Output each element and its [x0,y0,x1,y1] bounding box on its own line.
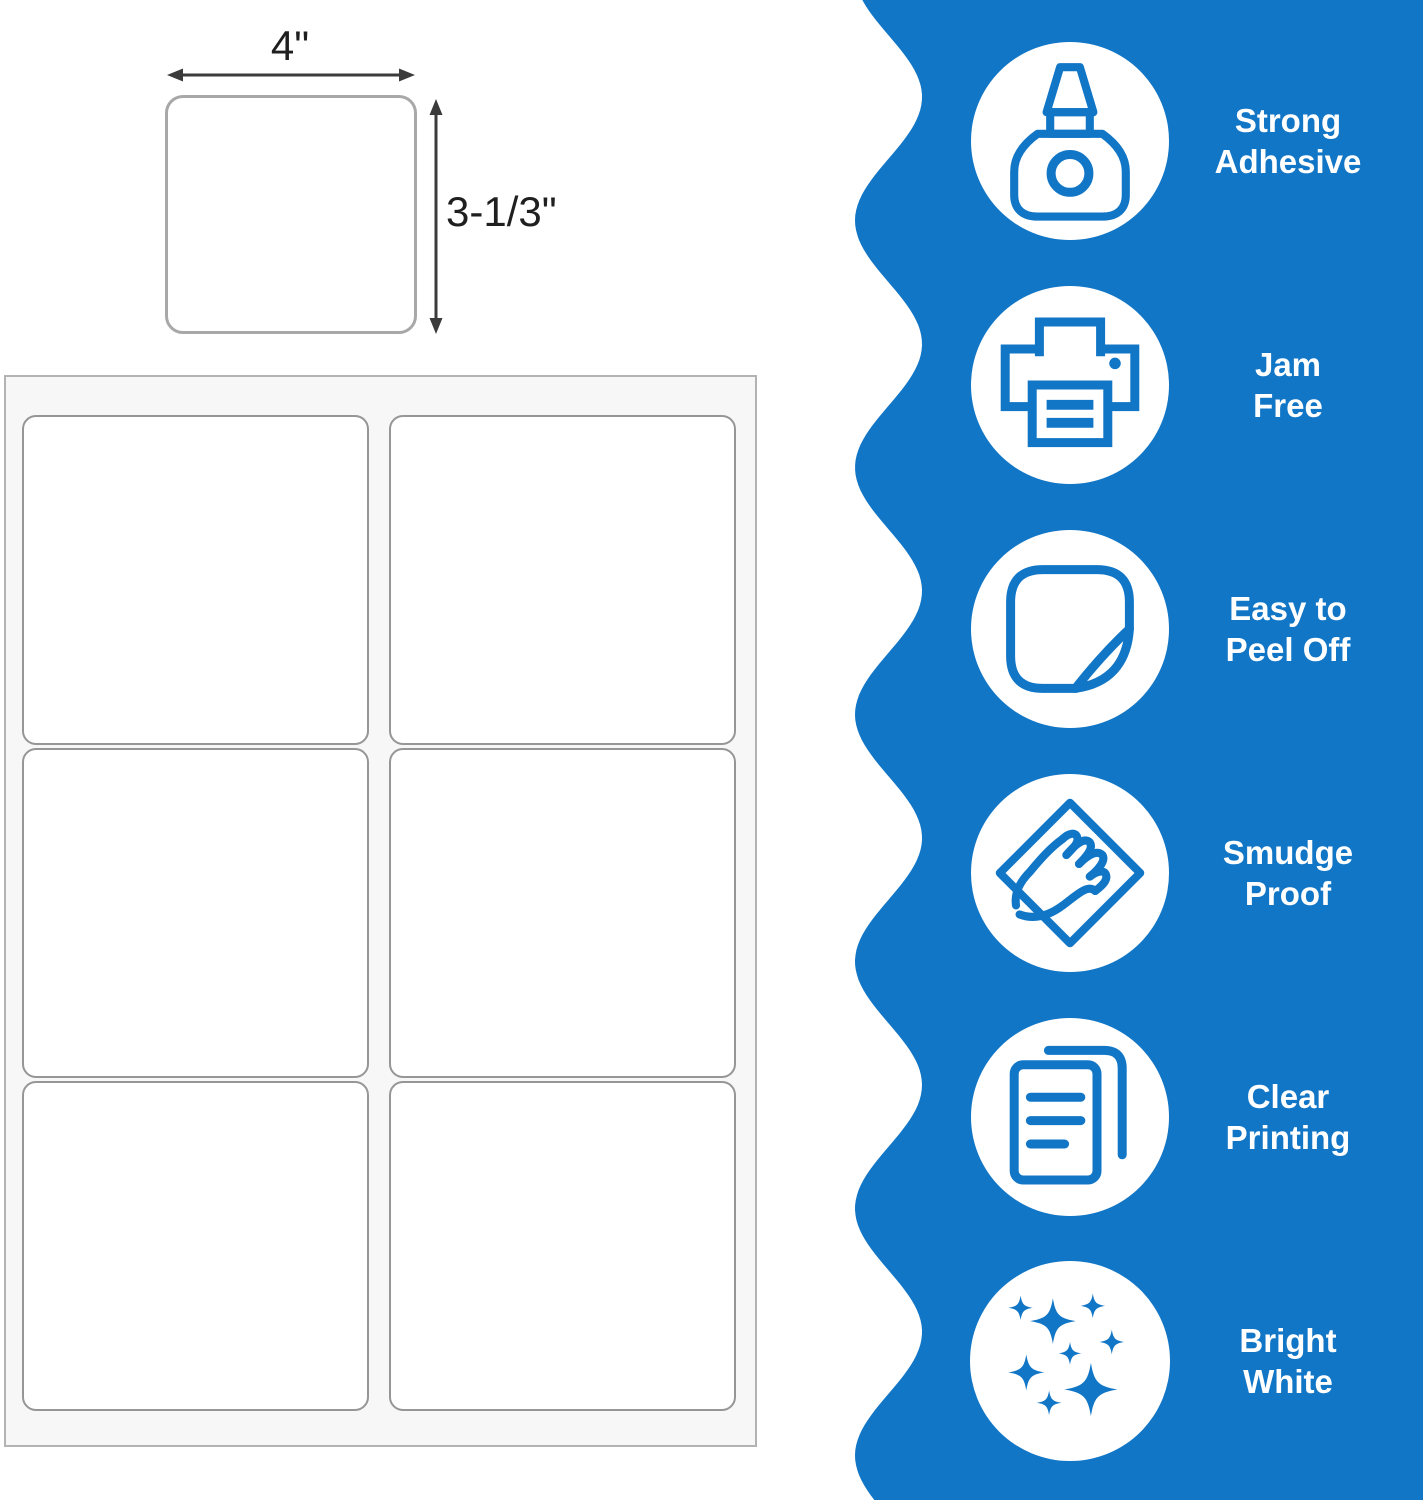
feature-line: Strong [1235,100,1341,141]
icon-circle [971,42,1169,240]
feature-icon-jam-free [971,286,1169,484]
feature-line: Adhesive [1215,141,1362,182]
feature-line: Jam [1255,344,1321,385]
feature-line: Free [1253,385,1323,426]
feature-icon-smudge-proof [971,774,1169,972]
feature-icon-strong-adhesive [971,42,1169,240]
feature-line: Proof [1245,873,1331,914]
feature-label-easy-peel: Easy to Peel Off [1162,569,1414,689]
feature-line: Easy to [1229,588,1346,629]
feature-label-smudge-proof: Smudge Proof [1162,813,1414,933]
label-product-infographic: 4" 3-1/3" [0,0,1423,1500]
feature-icon-clear-printing [971,1018,1169,1216]
feature-line: White [1243,1361,1333,1402]
feature-label-bright-white: Bright White [1162,1301,1414,1421]
feature-line: Peel Off [1226,629,1351,670]
feature-line: Clear [1247,1076,1330,1117]
feature-icon-bright-white [970,1261,1170,1461]
feature-label-jam-free: Jam Free [1162,325,1414,445]
blue-wave-panel [855,0,1423,1500]
feature-label-clear-printing: Clear Printing [1162,1057,1414,1177]
icon-circle [971,530,1169,728]
feature-line: Printing [1226,1117,1351,1158]
feature-label-strong-adhesive: Strong Adhesive [1162,81,1414,201]
feature-line: Smudge [1223,832,1353,873]
feature-line: Bright [1239,1320,1336,1361]
feature-icon-easy-peel [971,530,1169,728]
